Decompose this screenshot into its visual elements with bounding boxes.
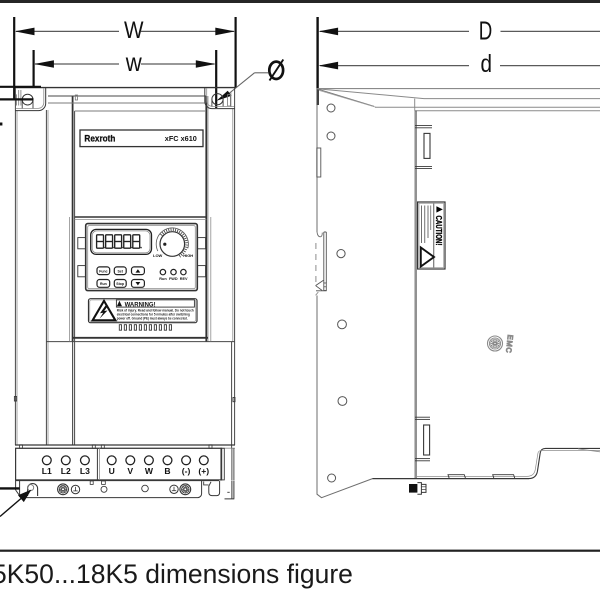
- svg-text:HIGH: HIGH: [183, 253, 193, 258]
- svg-text:power off. Ground (PE) must al: power off. Ground (PE) must always be co…: [117, 316, 188, 320]
- svg-text:Run: Run: [100, 282, 107, 286]
- svg-text:U: U: [109, 466, 115, 476]
- svg-text:w: w: [125, 49, 143, 77]
- svg-text:Run: Run: [159, 277, 167, 281]
- svg-text:Rexroth: Rexroth: [84, 133, 115, 144]
- svg-text:Func: Func: [99, 269, 107, 273]
- svg-text:WARNING!: WARNING!: [125, 301, 156, 308]
- svg-text:W: W: [124, 17, 144, 44]
- svg-text:(+): (+): [198, 466, 209, 476]
- svg-text:V: V: [127, 466, 133, 476]
- svg-text:L2: L2: [61, 466, 71, 476]
- svg-text:LOW: LOW: [153, 253, 163, 258]
- svg-text:5K50...18K5 dimensions figure: 5K50...18K5 dimensions figure: [0, 559, 353, 589]
- svg-text:B: B: [164, 466, 170, 476]
- svg-text:d: d: [480, 50, 492, 78]
- svg-text:Stop: Stop: [116, 282, 124, 286]
- svg-text:(-): (-): [182, 466, 191, 476]
- svg-text:L3: L3: [80, 466, 90, 476]
- svg-text:L1: L1: [42, 466, 52, 476]
- svg-text:xFC x610: xFC x610: [165, 134, 197, 143]
- svg-text:D: D: [479, 18, 493, 46]
- svg-text:FWD: FWD: [169, 277, 178, 281]
- svg-text:EMC: EMC: [504, 334, 515, 354]
- svg-text:REV: REV: [180, 277, 188, 281]
- svg-text:Set: Set: [117, 269, 123, 273]
- svg-text:W: W: [145, 466, 154, 476]
- svg-text:CAUTION!: CAUTION!: [434, 216, 443, 246]
